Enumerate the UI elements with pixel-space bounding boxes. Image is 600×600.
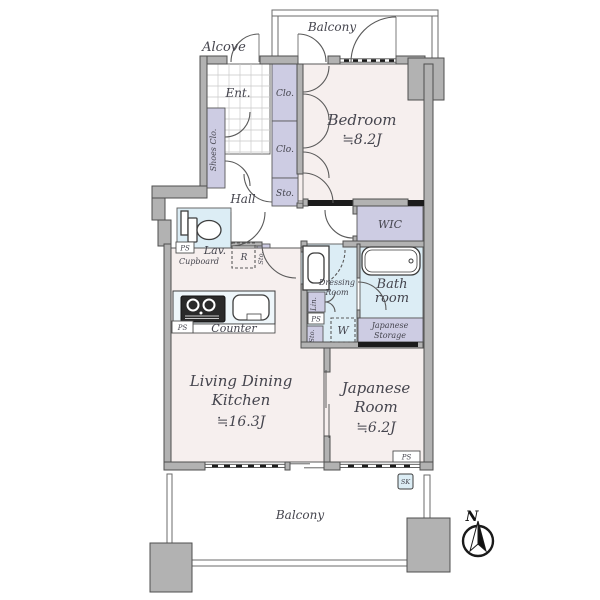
pillar-right [407, 518, 450, 572]
balcony-top-label: Balcony [307, 20, 356, 34]
entrance-label: Ent. [224, 86, 250, 100]
ps-label-japanese: PS [401, 454, 412, 462]
japanese-storage-label-1: Japanese [370, 321, 409, 330]
cupboard-label: Cupboard [179, 257, 219, 266]
japanese-room-size: ≒6.2J [356, 420, 397, 436]
bathroom-label-2: room [375, 291, 409, 306]
bathtub-icon [362, 247, 420, 275]
balcony-bottom-label: Balcony [275, 508, 324, 522]
japanese-room-label-2: Room [353, 398, 398, 416]
compass-icon [463, 521, 493, 556]
ldk-label-2: Kitchen [211, 391, 271, 409]
dressing-label-2: Room [324, 288, 349, 297]
ps-label-dressing: PS [310, 316, 321, 324]
japanese-storage-label-2: Storage [374, 331, 406, 340]
stove-icon [181, 296, 225, 322]
linen-label: Lin. [310, 297, 318, 312]
hall-label: Hall [229, 192, 255, 206]
north-label: N [465, 509, 480, 525]
ps-label-kitchen: PS [177, 324, 188, 332]
storage-hall-label: Sto. [276, 189, 294, 199]
japanese-room-label-1: Japanese [339, 379, 411, 397]
alcove-label: Alcove [201, 40, 246, 55]
balcony-bottom-structure [150, 474, 450, 592]
storage-kitchen-label: Sto. [257, 252, 265, 265]
storage-dressing-label: Sto. [308, 330, 316, 343]
bathroom-label-1: Bath [376, 277, 408, 292]
washer-label: W [337, 324, 350, 337]
closet-upper-label: Clo. [276, 89, 294, 99]
sink-icon [233, 295, 269, 320]
shoes-closet-label: Shoes Clo. [209, 129, 218, 172]
pillar-left [150, 543, 192, 592]
dressing-label-1: Dressing [318, 278, 355, 287]
counter-label: Counter [211, 322, 257, 335]
bedroom-label: Bedroom [327, 111, 397, 129]
refrigerator-label: R [240, 253, 248, 263]
ps-label-lav: PS [179, 245, 190, 253]
floor-plan-svg: Balcony Alcove Ent. Shoes Clo. Clo. Clo.… [0, 0, 600, 600]
closet-lower-label: Clo. [276, 145, 294, 155]
floor-plan: Balcony Alcove Ent. Shoes Clo. Clo. Clo.… [0, 0, 600, 600]
wic-label: WIC [378, 218, 403, 231]
bedroom-size: ≒8.2J [342, 132, 383, 148]
ldk-size: ≒16.3J [217, 414, 267, 430]
ldk-label-1: Living Dining [189, 372, 293, 390]
sk-label: SK [401, 478, 411, 486]
lavatory-label: Lav. [203, 244, 226, 257]
